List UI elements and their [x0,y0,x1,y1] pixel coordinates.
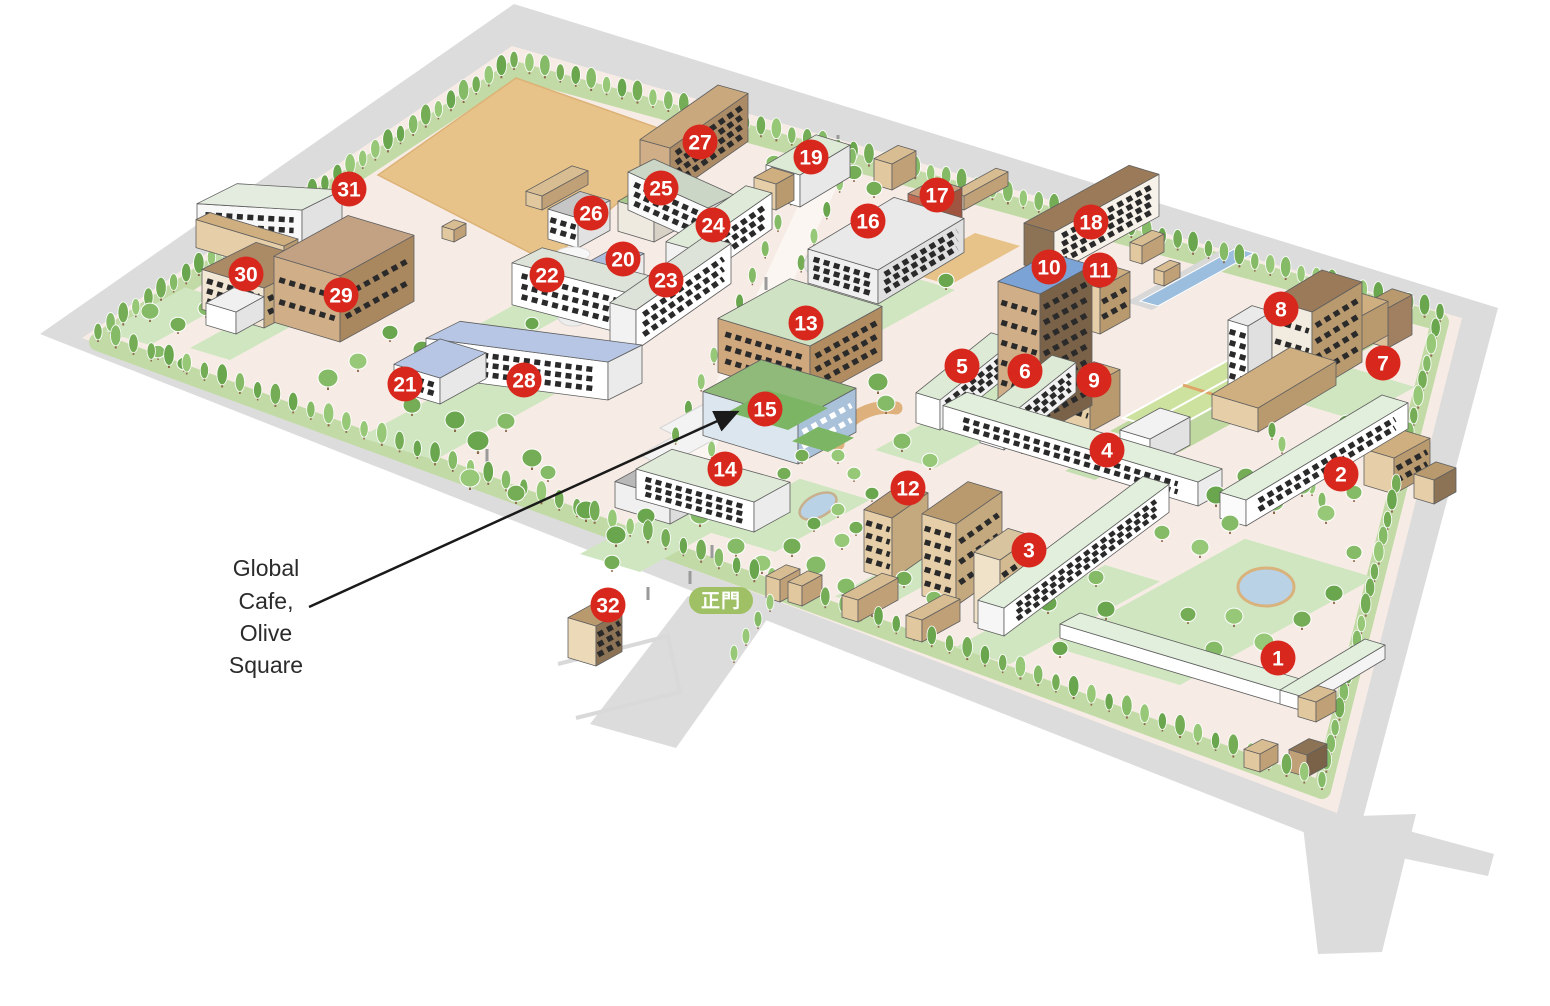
cypress-tree [617,78,626,97]
building-marker-10[interactable]: 10 [1032,250,1067,285]
marker-number: 20 [611,249,634,272]
marker-number: 11 [1089,260,1112,283]
building-marker-2[interactable]: 2 [1324,457,1359,492]
cypress-tree [501,470,510,489]
cypress-tree [1122,695,1132,716]
cypress-tree [1357,615,1365,632]
cypress-tree [571,66,580,85]
round-tree [445,411,465,429]
cypress-tree [742,628,750,644]
cypress-tree [696,539,706,560]
round-tree [868,373,888,391]
round-tree [525,317,539,330]
building-marker-3[interactable]: 3 [1012,533,1047,568]
callout-text-line: Square [229,652,303,678]
marker-number: 24 [701,215,725,238]
round-tree [847,467,861,480]
cypress-tree [1331,719,1339,736]
building-marker-25[interactable]: 25 [644,171,679,206]
cypress-tree [874,606,883,625]
cypress-tree [821,587,830,606]
round-tree [849,521,863,534]
cypress-tree [999,654,1007,671]
cypress-tree [395,431,404,450]
cypress-tree [761,241,769,257]
cypress-tree [484,65,493,84]
callout-text-line: Olive [240,620,292,646]
round-tree [349,353,367,369]
round-tree [1088,570,1104,584]
cypress-tree [697,374,705,390]
marker-number: 26 [579,203,602,226]
cypress-tree [1175,714,1185,735]
cypress-tree [1015,656,1025,677]
round-tree [831,449,845,462]
building-marker-13[interactable]: 13 [789,306,824,341]
cypress-tree [1266,255,1275,274]
cypress-tree [1188,231,1198,252]
cypress-tree [430,442,440,463]
marker-number: 27 [688,132,711,155]
cypress-tree [1370,563,1378,580]
cypress-tree [1423,355,1431,372]
building [864,510,892,580]
cypress-tree [1268,422,1276,438]
cypress-tree [129,334,138,353]
cypress-tree [962,637,972,658]
cypress-tree [1034,192,1043,211]
marker-number: 17 [925,185,948,208]
cypress-tree [359,150,367,167]
round-tree [938,273,954,287]
marker-number: 25 [649,178,673,201]
cypress-tree [182,353,191,372]
cypress-tree [345,154,355,175]
cypress-tree [749,559,759,580]
cypress-tree [1374,541,1384,562]
cypress-tree [323,403,333,424]
cypress-tree [788,127,796,144]
marker-number: 29 [329,285,352,308]
round-tree [170,317,186,331]
cypress-tree [371,139,380,158]
cypress-tree [649,89,657,106]
cypress-tree [1033,665,1042,684]
marker-number: 3 [1023,540,1035,563]
cypress-tree [525,53,534,72]
cypress-tree [945,635,953,652]
cypress-tree [748,267,756,283]
cypress-tree [892,615,900,632]
courtyard-pond [1238,568,1294,606]
marker-number: 6 [1019,361,1031,384]
marker-number: 19 [799,147,822,170]
cypress-tree [1158,713,1166,730]
marker-number: 21 [393,374,417,397]
cypress-tree [396,125,404,142]
round-tree [893,433,911,449]
round-tree [1180,607,1196,621]
round-tree [522,449,542,467]
round-tree [831,503,845,516]
cypress-tree [664,91,673,110]
round-tree [777,467,791,480]
lamp-post [647,587,650,600]
marker-number: 32 [596,595,619,618]
cypress-tree [1300,762,1309,781]
cypress-tree [1387,489,1397,510]
cypress-tree [510,51,518,68]
marker-number: 22 [535,265,558,288]
round-tree [382,325,398,339]
cypress-tree [643,520,653,541]
cypress-tree [608,509,617,528]
cypress-tree [307,401,315,418]
round-tree [1221,515,1239,531]
cypress-tree [408,115,417,134]
building-marker-12[interactable]: 12 [891,471,926,506]
marker-number: 28 [512,370,536,393]
lamp-post [486,449,489,462]
building-marker-9[interactable]: 9 [1077,363,1112,398]
cypress-tree [1211,732,1219,749]
cypress-tree [1281,753,1291,774]
cypress-tree [1297,265,1305,282]
marker-number: 9 [1088,370,1100,393]
round-tree [1225,608,1243,624]
cypress-tree [1052,674,1060,691]
marker-number: 5 [956,356,968,379]
cypress-tree [1413,385,1423,406]
round-tree [318,369,338,387]
southeast-road-branch [1392,828,1494,876]
cypress-tree [342,412,351,431]
lamp-post [711,545,714,558]
cypress-tree [766,594,774,610]
cypress-tree [1087,684,1096,703]
cypress-tree [496,55,506,76]
marker-number: 16 [856,211,879,234]
building-marker-7[interactable]: 7 [1366,346,1401,381]
round-tree [507,485,525,501]
building-marker-17[interactable]: 17 [920,178,955,213]
building-marker-27[interactable]: 27 [683,125,718,160]
building-marker-24[interactable]: 24 [696,208,731,243]
round-tree [896,571,912,585]
round-tree [467,431,489,451]
cypress-tree [1410,407,1418,424]
building-marker-31[interactable]: 31 [332,172,367,207]
marker-number: 10 [1037,257,1060,280]
cypress-tree [980,645,989,664]
cypress-tree [1219,242,1228,261]
round-tree [783,538,801,554]
cypress-tree [164,344,174,365]
cypress-tree [708,441,716,457]
marker-number: 14 [713,459,737,482]
cypress-tree [270,383,280,404]
round-tree [877,395,895,411]
round-tree [922,453,938,467]
cypress-tree [1318,771,1326,788]
building-marker-14[interactable]: 14 [708,452,743,487]
cypress-tree [94,323,102,340]
round-tree [1154,525,1170,539]
marker-number: 30 [234,264,257,287]
cypress-tree [756,116,765,135]
cypress-tree [710,347,718,363]
building-marker-1[interactable]: 1 [1261,641,1296,676]
cypress-tree [661,529,670,548]
round-tree [497,413,515,429]
cypress-tree [1140,704,1149,723]
building-marker-29[interactable]: 29 [324,278,359,313]
marker-number: 8 [1275,299,1287,322]
cypress-tree [1173,229,1182,248]
gate-badge-label: 正門 [701,590,741,612]
building-marker-5[interactable]: 5 [945,349,980,384]
cypress-tree [1436,303,1444,320]
cypress-tree [253,382,261,399]
round-tree [866,181,882,195]
cypress-tree [458,79,468,100]
cypress-tree [448,451,457,470]
marker-number: 31 [337,179,361,202]
cypress-tree [632,80,642,101]
round-tree [727,538,745,554]
building-marker-26[interactable]: 26 [574,196,609,231]
cypress-tree [147,343,155,360]
cypress-tree [377,422,387,443]
cypress-tree [156,277,166,298]
round-tree [834,533,850,547]
building-marker-4[interactable]: 4 [1090,433,1125,468]
cypress-tree [1105,693,1113,710]
cypress-tree [679,537,687,554]
main-gate-badge: 正門 [689,587,753,614]
round-tree [807,517,821,530]
cypress-tree [421,104,431,125]
round-tree [1293,611,1311,627]
building-marker-22[interactable]: 22 [530,258,565,293]
callout-text-line: Cafe, [239,588,294,614]
round-tree [865,487,879,500]
cypress-tree [434,101,442,118]
cypress-tree [1019,190,1027,207]
building-marker-19[interactable]: 19 [794,140,829,175]
cypress-tree [774,214,782,230]
cypress-tree [169,274,177,291]
cypress-tree [1426,333,1436,354]
cypress-tree [217,364,227,385]
lamp-post [765,277,768,290]
round-tree [141,303,159,319]
campus-map-illustration: Global Cafe, Olive Square 12345678910111… [0,0,1550,1006]
building-marker-28[interactable]: 28 [507,363,542,398]
round-tree [1191,539,1209,555]
marker-number: 2 [1335,464,1347,487]
cypress-tree [1280,256,1290,277]
building-marker-6[interactable]: 6 [1008,354,1043,389]
cypress-tree [118,302,128,323]
cypress-tree [413,440,421,457]
cypress-tree [556,64,564,81]
cypress-tree [771,118,781,139]
round-tree [606,526,626,544]
cypress-tree [732,557,740,574]
cypress-tree [1068,676,1078,697]
cypress-tree [132,298,140,315]
callout-text-line: Global [233,555,299,581]
round-tree [460,469,480,487]
round-tree [604,555,620,569]
cypress-tree [626,518,634,535]
cypress-tree [1360,593,1370,614]
building-marker-16[interactable]: 16 [851,204,886,239]
cypress-tree [864,143,874,164]
cypress-tree [1278,436,1286,452]
building-marker-8[interactable]: 8 [1264,292,1299,327]
building-marker-30[interactable]: 30 [229,257,264,292]
building-marker-32[interactable]: 32 [591,588,626,623]
cypress-tree [586,67,596,88]
cypress-tree [483,461,493,482]
cypress-tree [1383,511,1391,528]
marker-number: 4 [1101,440,1113,463]
marker-number: 23 [654,270,677,293]
cypress-tree [111,325,121,346]
cypress-tree [602,76,610,93]
lamp-post [689,571,692,584]
cypress-tree [823,202,831,218]
round-tree [1052,641,1068,655]
cypress-tree [1419,294,1429,315]
building-marker-11[interactable]: 11 [1083,253,1118,288]
cypress-tree [1228,734,1238,755]
building-marker-20[interactable]: 20 [606,242,641,277]
cypress-tree [754,611,762,627]
cypress-tree [1204,240,1212,257]
cypress-tree [589,500,599,521]
marker-number: 1 [1272,648,1284,671]
building-marker-15[interactable]: 15 [748,392,783,427]
cypress-tree [235,373,244,392]
round-tree [1097,601,1115,617]
cypress-tree [472,76,480,93]
cypress-tree [810,228,818,244]
cypress-tree [360,421,368,438]
building-marker-18[interactable]: 18 [1074,205,1109,240]
round-tree [1325,585,1343,601]
marker-number: 18 [1079,212,1103,235]
cypress-tree [288,392,297,411]
cypress-tree [1193,723,1202,742]
marker-number: 15 [753,399,777,422]
building-marker-23[interactable]: 23 [649,263,684,298]
cypress-tree [927,626,936,645]
cypress-tree [714,548,723,567]
cypress-tree [1234,244,1244,265]
cypress-tree [730,645,738,661]
round-tree [795,449,809,462]
cypress-tree [540,55,550,76]
cypress-tree [383,129,393,150]
round-tree [1346,545,1362,559]
cypress-tree [182,263,191,282]
marker-number: 13 [794,313,817,336]
building-marker-21[interactable]: 21 [388,367,423,402]
cypress-tree [446,90,455,109]
round-tree [540,465,556,479]
marker-number: 12 [896,478,919,501]
round-tree [1317,505,1335,521]
cypress-tree [200,362,208,379]
marker-number: 7 [1377,353,1389,376]
cypress-tree [1251,253,1259,270]
